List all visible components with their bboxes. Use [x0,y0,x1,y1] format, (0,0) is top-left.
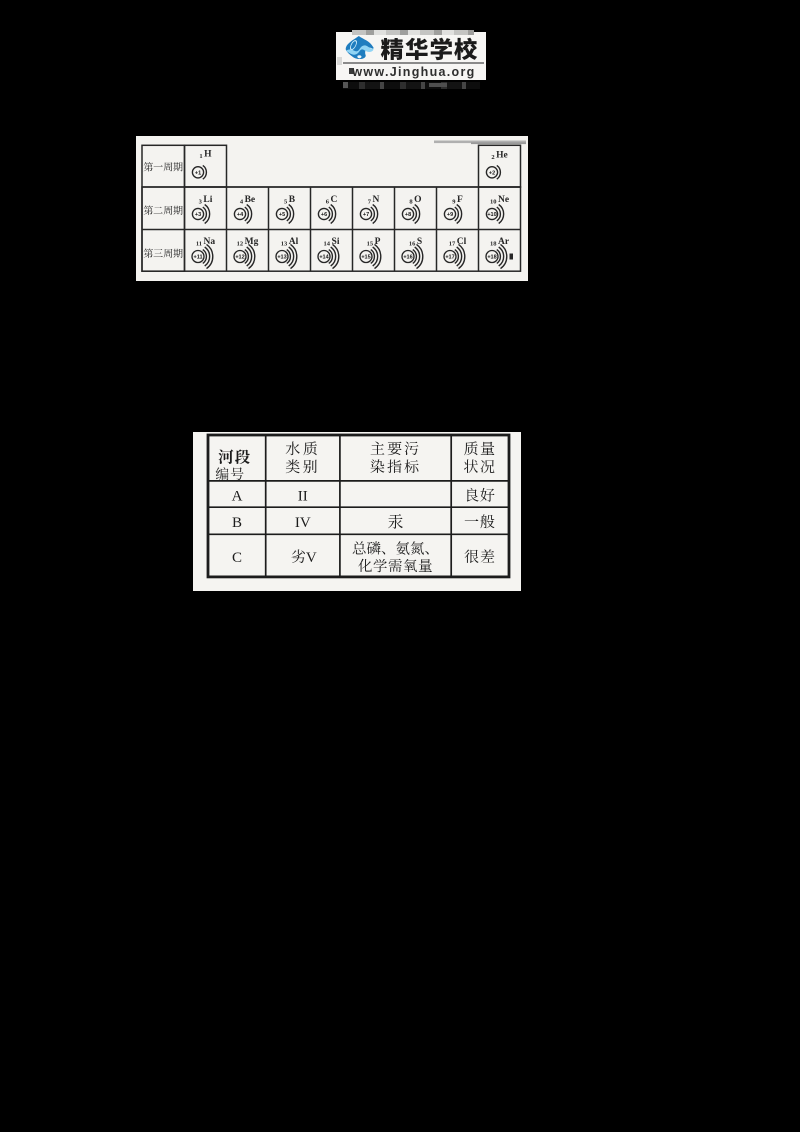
svg-text:+8: +8 [405,212,411,218]
svg-text:+6: +6 [321,212,327,218]
svg-text:+17: +17 [445,254,454,260]
svg-text:+2: +2 [489,170,495,176]
svg-text:C: C [231,550,241,566]
svg-text:9F: 9F [452,195,463,206]
svg-text:IV: IV [294,514,310,530]
svg-text:4Be: 4Be [240,195,255,206]
svg-text:河段: 河段 [218,448,251,466]
svg-text:10Ne: 10Ne [490,195,509,206]
svg-text:第三周期: 第三周期 [143,248,183,260]
svg-text:+12: +12 [235,254,244,260]
svg-text:16S: 16S [409,237,422,248]
svg-text:汞: 汞 [387,513,403,531]
svg-text:染指标: 染指标 [369,459,420,476]
svg-text:13Al: 13Al [281,237,299,248]
svg-text:12Mg: 12Mg [237,237,259,248]
svg-text:状况: 状况 [463,459,496,476]
svg-text:17Cl: 17Cl [449,237,467,248]
svg-text:化学需氧量: 化学需氧量 [358,558,433,575]
svg-text:+10: +10 [487,212,496,218]
svg-text:+18: +18 [487,254,496,260]
svg-text:类别: 类别 [285,459,320,476]
svg-text:+16: +16 [403,254,412,260]
svg-text:+13: +13 [277,254,286,260]
svg-text:主要污: 主要污 [369,441,420,458]
svg-text:一般: 一般 [463,513,495,530]
svg-text:14Si: 14Si [324,237,340,248]
svg-text:7N: 7N [368,195,380,206]
svg-text:水质: 水质 [285,441,320,458]
svg-text:质量: 质量 [463,441,496,458]
svg-text:15P: 15P [367,237,381,248]
svg-text:+15: +15 [361,254,370,260]
svg-text:2He: 2He [491,150,507,161]
svg-text:6C: 6C [326,195,338,206]
svg-text:1H: 1H [199,149,212,160]
svg-text:+9: +9 [447,212,453,218]
svg-text:编号: 编号 [215,467,245,483]
svg-text:A: A [231,488,242,504]
svg-text:+11: +11 [193,254,202,260]
svg-text:总磷、氨氮、: 总磷、氨氮、 [352,540,439,557]
svg-text:II: II [297,488,307,504]
svg-text:11Na: 11Na [196,237,216,248]
svg-text:+4: +4 [237,212,244,218]
svg-text:3Li: 3Li [199,195,213,206]
svg-text:+14: +14 [319,254,329,260]
svg-text:+1: +1 [195,170,201,176]
svg-text:第二周期: 第二周期 [143,205,183,217]
svg-text:8O: 8O [409,195,421,206]
svg-text:劣V: 劣V [290,549,316,566]
svg-text:18Ar: 18Ar [490,237,510,248]
svg-text:5B: 5B [284,195,296,206]
svg-text:很差: 很差 [463,549,495,566]
svg-text:第一周期: 第一周期 [143,161,183,173]
svg-text:B: B [231,514,241,530]
svg-text:+5: +5 [279,212,285,218]
svg-text:+7: +7 [363,212,369,218]
svg-text:+3: +3 [195,212,201,218]
svg-text:良好: 良好 [463,487,495,504]
